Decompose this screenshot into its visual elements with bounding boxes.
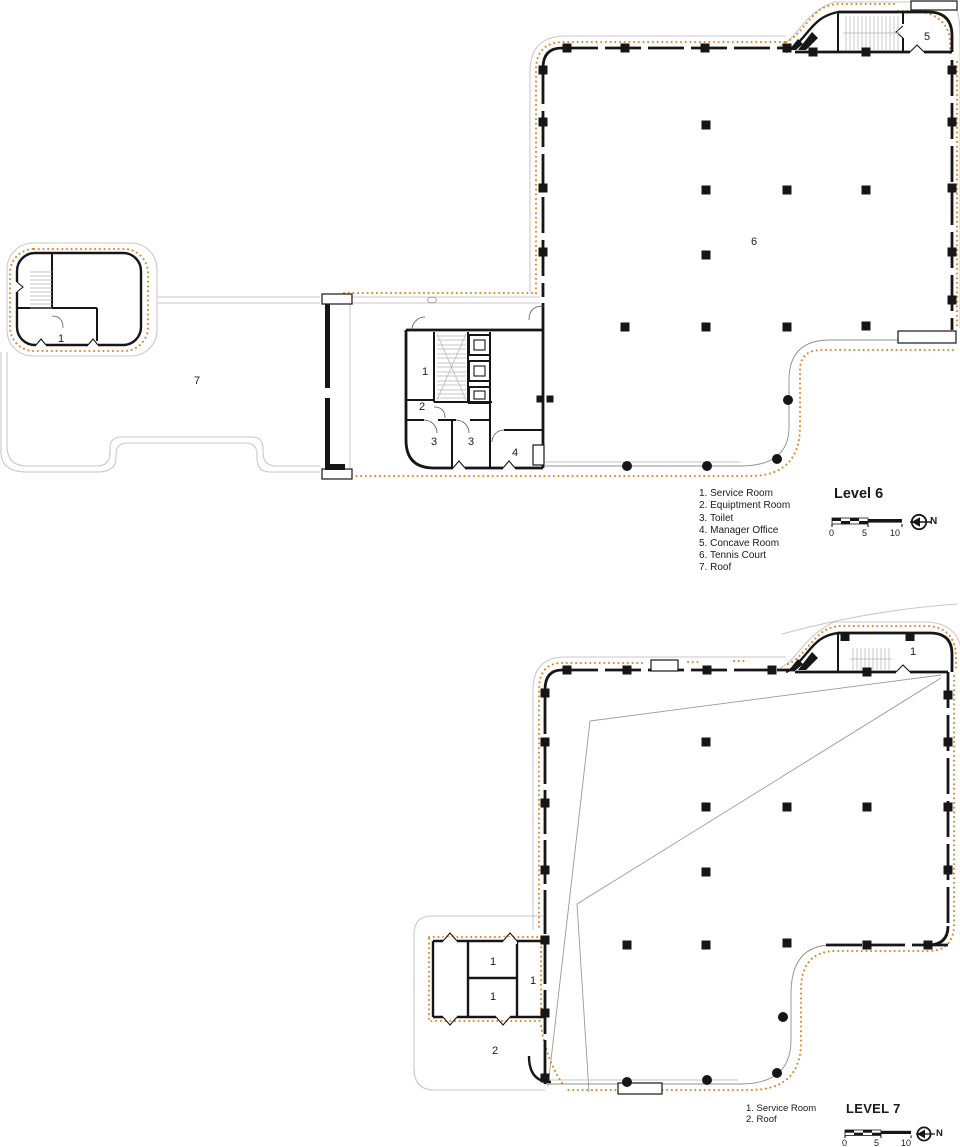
level7-north-arrow — [916, 1127, 935, 1140]
scale-tick-0: 0 — [829, 528, 834, 538]
room-label-l6-toilet-a: 3 — [431, 436, 437, 448]
level6-columns — [537, 44, 957, 472]
room-label-l6-toilet-b: 3 — [468, 436, 474, 448]
room-label-l6-roof: 7 — [194, 375, 200, 387]
legend-item: 2. Equiptment Room — [699, 500, 790, 512]
scale-tick-5: 5 — [874, 1138, 879, 1147]
room-label-l7-service-c: 1 — [490, 991, 496, 1003]
level6-plan — [1, 1, 960, 529]
legend-item: 7. Roof — [699, 562, 790, 574]
legend-item: 4. Manager Office — [699, 525, 790, 537]
level7-legend: 1. Service Room 2. Roof — [746, 1104, 816, 1126]
legend-item: 2. Roof — [746, 1115, 816, 1126]
level6-title: Level 6 — [834, 486, 883, 502]
level6-curtain-wall — [545, 340, 898, 466]
level7-scale-bar — [845, 1130, 911, 1138]
legend-item: 5. Concave Room — [699, 538, 790, 550]
scale-tick-5: 5 — [862, 528, 867, 538]
level7-roof-ridge-lines — [548, 675, 941, 1092]
level7-envelope-dotted — [429, 626, 956, 1090]
floorplan-sheet: 1 7 1 2 3 3 4 5 6 1. Service Room 2. Equ… — [0, 0, 960, 1147]
level6-envelope-dotted — [10, 4, 957, 476]
north-label: N — [936, 1128, 943, 1139]
level6-stair-hatch — [30, 16, 901, 400]
legend-item: 3. Toilet — [699, 513, 790, 525]
scale-tick-10: 10 — [890, 528, 900, 538]
north-label: N — [930, 516, 937, 527]
level7-columns — [541, 633, 953, 1087]
floorplan-canvas — [0, 0, 960, 1147]
room-label-l6-left-service: 1 — [58, 333, 64, 345]
room-label-l7-upper-service: 1 — [910, 646, 916, 658]
level6-legend: 1. Service Room 2. Equiptment Room 3. To… — [699, 488, 790, 575]
level7-curtain-wall — [545, 945, 832, 1084]
room-label-l6-manager-office: 4 — [512, 447, 518, 459]
legend-item: 1. Service Room — [699, 488, 790, 500]
room-label-l6-core-service: 1 — [422, 366, 428, 378]
level6-north-arrow — [910, 515, 931, 529]
scale-tick-0: 0 — [842, 1138, 847, 1147]
room-label-l6-tennis-court: 6 — [751, 236, 757, 248]
room-label-l7-service-b: 1 — [530, 975, 536, 987]
room-label-l6-concave-room: 5 — [924, 31, 930, 43]
level6-walls — [14, 1, 957, 479]
legend-item: 6. Tennis Court — [699, 550, 790, 562]
level6-scale-bar — [832, 518, 902, 527]
room-label-l7-roof: 2 — [492, 1045, 498, 1057]
scale-tick-10: 10 — [901, 1138, 911, 1147]
room-label-l7-service-a: 1 — [490, 956, 496, 968]
level7-title: LEVEL 7 — [846, 1101, 901, 1116]
room-label-l6-equipment: 2 — [419, 401, 425, 413]
level7-stair-hatch — [850, 648, 892, 670]
level7-walls — [433, 633, 952, 1094]
level7-plan — [414, 604, 960, 1141]
